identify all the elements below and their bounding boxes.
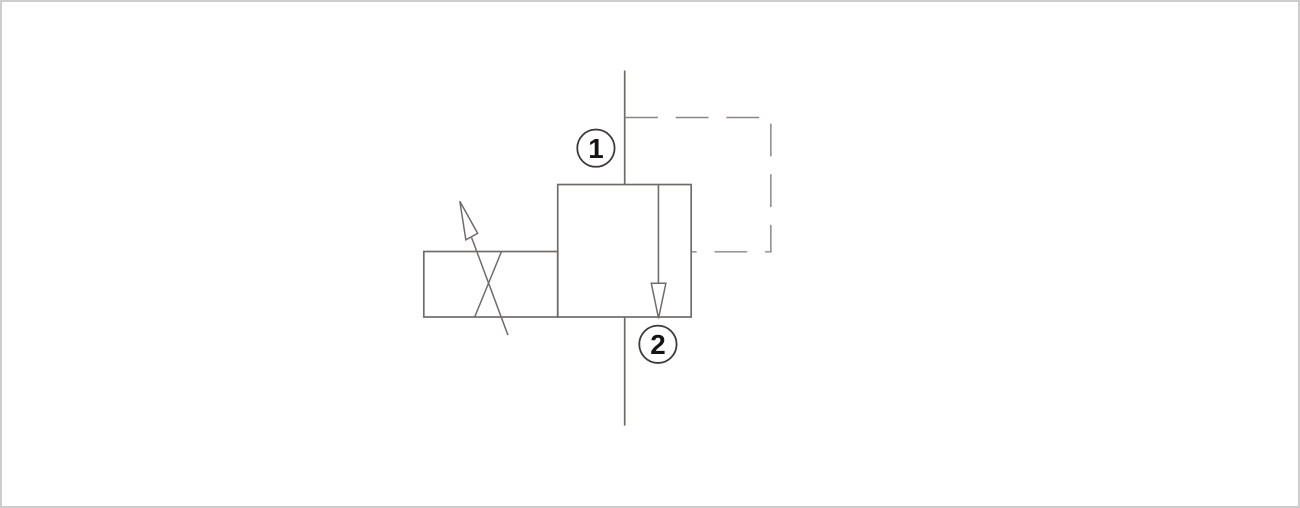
port-2-label: 2 [650,329,665,360]
port-1-badge: 1 [577,129,614,166]
adjustment-arrowhead-icon [460,201,478,240]
valve-schematic-canvas: 1 2 [2,2,1298,506]
diagonal-adjustment-arrow [460,201,508,335]
valve-body-box [558,185,691,317]
adjustable-actuator-box [424,252,558,317]
schematic-page: 1 2 [0,0,1300,508]
port-2-badge: 2 [639,326,676,363]
port-1-label: 1 [588,133,603,164]
